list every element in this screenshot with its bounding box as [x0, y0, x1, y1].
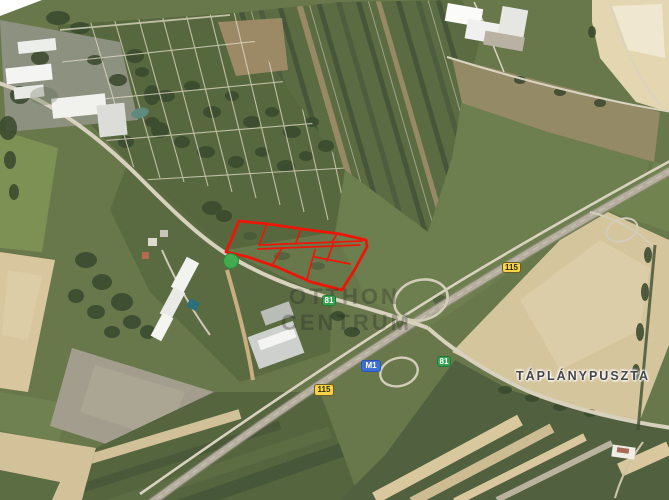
satellite-map[interactable]: OTTHON CENTRUM TÁPLÁNYPUSZTA 115 115 M1 …	[0, 0, 669, 500]
green-marker	[223, 253, 239, 269]
map-edge-blank	[0, 0, 42, 16]
route-shield-115-lower: 115	[314, 384, 334, 396]
route-shield-81-east: 81	[437, 356, 451, 367]
route-shield-115-upper: 115	[502, 262, 521, 273]
route-shield-81-west: 81	[322, 295, 336, 306]
route-shield-m1: M1	[361, 360, 381, 372]
fields-layer	[0, 0, 669, 500]
satellite-imagery	[0, 0, 669, 500]
